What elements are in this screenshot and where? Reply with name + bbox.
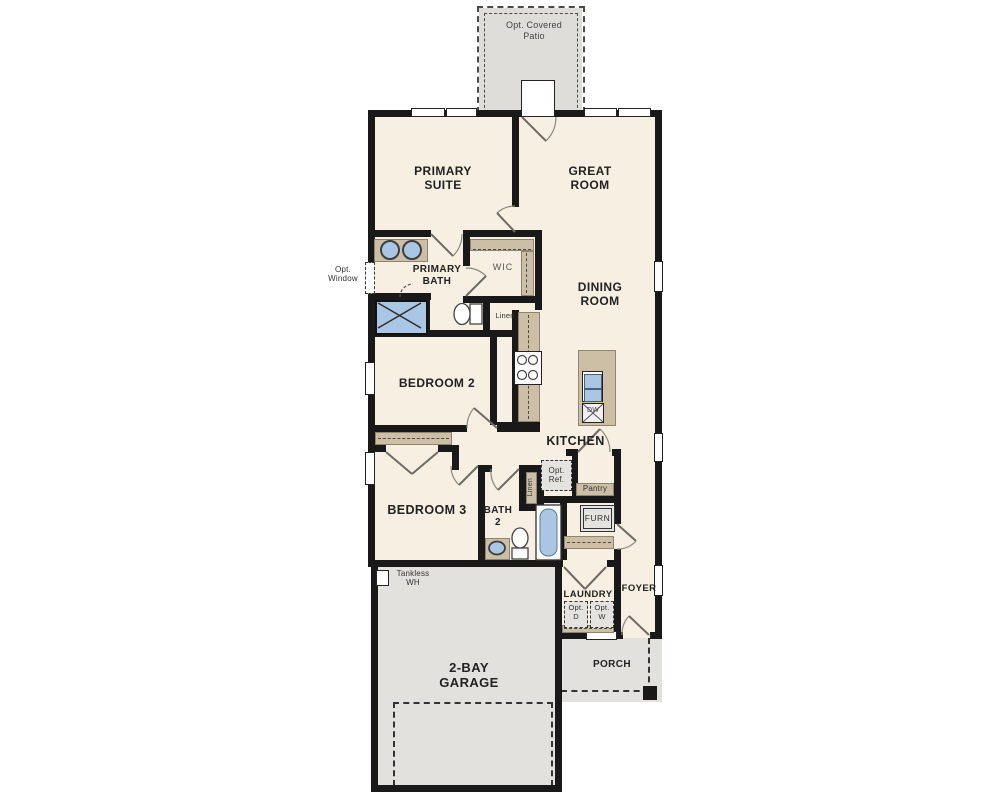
opt-ref-label: Opt.Ref. xyxy=(541,466,572,485)
wall-segment xyxy=(561,632,587,639)
kitchen-label: KITCHEN xyxy=(528,434,623,449)
primary-suite-label: PRIMARYSUITE xyxy=(398,164,488,192)
window xyxy=(654,433,663,462)
bedroom2-label: BEDROOM 2 xyxy=(385,376,489,390)
tankless-water-heater xyxy=(376,570,389,586)
window xyxy=(411,108,445,117)
wall-segment xyxy=(368,560,563,567)
laundry-label: LAUNDRY xyxy=(552,589,624,600)
wic-label: WIC xyxy=(484,262,522,273)
shelf-rod xyxy=(378,438,449,439)
porch-post xyxy=(643,686,657,700)
shelf-rod xyxy=(564,628,612,629)
island-sink-basin xyxy=(584,389,602,402)
stove xyxy=(514,351,542,385)
window xyxy=(446,108,477,117)
wall-segment xyxy=(655,462,662,565)
wall-segment xyxy=(614,449,621,524)
wall-segment xyxy=(478,465,492,472)
optional-window xyxy=(365,262,375,294)
wall-segment xyxy=(560,503,567,560)
wall-segment xyxy=(537,496,621,503)
wall-segment xyxy=(368,293,431,300)
furnace-label: FURN xyxy=(580,513,615,523)
opt-washer-label: Opt.W xyxy=(590,604,614,622)
wall-segment xyxy=(463,237,470,266)
wall-segment xyxy=(655,292,662,433)
garage-label: 2-BAYGARAGE xyxy=(433,660,505,691)
dishwasher-label: DW xyxy=(584,407,602,415)
porch-label: PORCH xyxy=(583,659,641,671)
wall-segment xyxy=(463,230,542,237)
wall-segment xyxy=(368,485,375,567)
window xyxy=(365,452,375,485)
floor-plan: Opt. CoveredPatio PRIMARYSUITE GREATROOM… xyxy=(0,0,1000,800)
opt-window-label: Opt.Window xyxy=(322,265,364,284)
window xyxy=(618,108,651,117)
shelf-rod xyxy=(567,542,611,543)
wall-segment xyxy=(368,425,467,432)
wall-segment xyxy=(371,785,562,792)
wall-segment xyxy=(490,337,497,425)
dining-room-label: DININGROOM xyxy=(564,280,636,308)
wall-segment xyxy=(650,632,662,639)
wall-segment xyxy=(368,445,386,452)
wall-segment xyxy=(463,296,542,303)
wall-segment xyxy=(452,445,459,470)
patio-door-recess xyxy=(521,80,555,117)
wall-segment xyxy=(655,110,662,261)
wic-shelf xyxy=(521,251,534,296)
wall-segment xyxy=(368,230,431,237)
foyer-label: FOYER xyxy=(615,583,663,594)
garage-door-outline xyxy=(393,702,553,786)
shelf-rod xyxy=(526,253,527,293)
wall-segment xyxy=(519,504,544,511)
pantry-label: Pantry xyxy=(576,484,614,493)
linen-label: Linen xyxy=(487,312,523,321)
bedroom3-label: BEDROOM 3 xyxy=(371,503,483,518)
wall-segment xyxy=(616,632,623,639)
great-room-label: GREATROOM xyxy=(554,164,626,192)
vanity-counter xyxy=(374,239,428,262)
wall-segment xyxy=(497,422,540,432)
shelf-rod xyxy=(473,249,531,250)
tankless-wh-label: TanklessWH xyxy=(390,569,436,588)
island-sink-basin xyxy=(584,374,602,389)
wall-segment xyxy=(371,566,378,792)
window xyxy=(654,261,663,292)
shower xyxy=(375,300,428,335)
opt-dryer-label: Opt.D xyxy=(564,604,588,622)
bath2-label: BATH2 xyxy=(481,505,515,529)
wall-segment xyxy=(368,395,375,452)
bath2-sink-counter xyxy=(485,538,510,560)
linen2-label: Linen xyxy=(527,474,535,500)
wall-segment xyxy=(614,549,621,560)
patio-label: Opt. CoveredPatio xyxy=(503,20,565,41)
window xyxy=(584,108,617,117)
wall-segment xyxy=(438,445,452,452)
wall-segment xyxy=(512,110,519,207)
window xyxy=(365,362,375,395)
primary-bath-label: PRIMARYBATH xyxy=(401,264,473,288)
wall-segment xyxy=(566,449,578,456)
